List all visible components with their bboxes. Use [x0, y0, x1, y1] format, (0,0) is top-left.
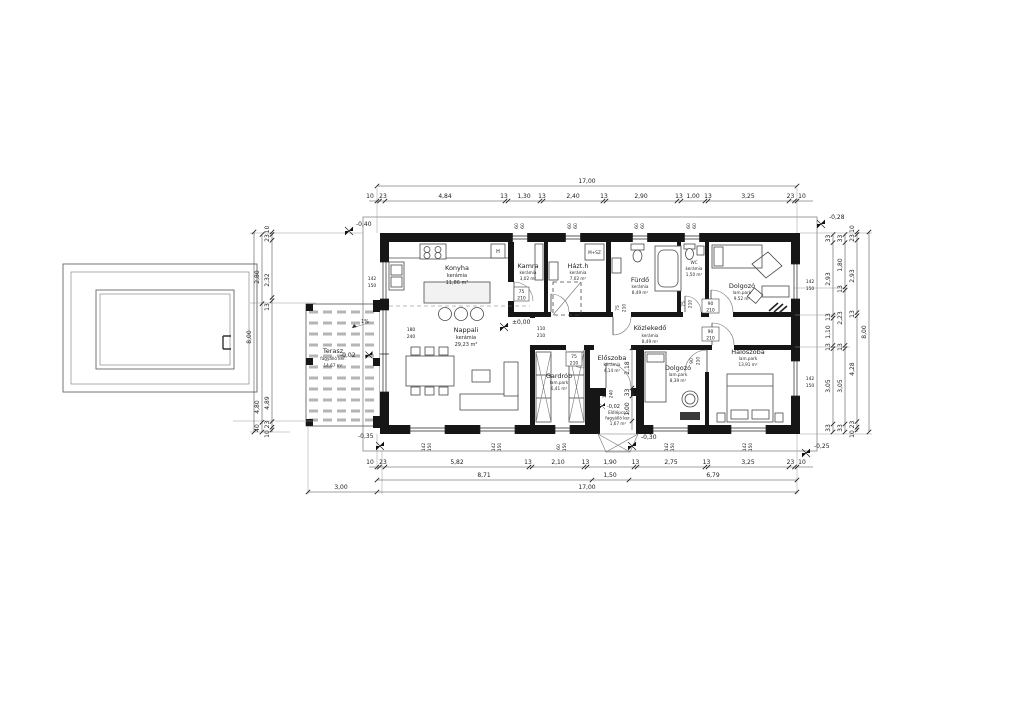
svg-text:60: 60 — [634, 223, 640, 229]
svg-text:kerámia: kerámia — [447, 272, 467, 279]
svg-text:210: 210 — [622, 304, 628, 313]
dim-right-3: 10232,93134,282310 — [849, 225, 859, 438]
svg-text:13: 13 — [704, 193, 712, 200]
svg-text:150: 150 — [748, 443, 754, 452]
svg-text:150: 150 — [497, 443, 503, 452]
svg-text:10: 10 — [264, 430, 271, 438]
svg-text:Előszoba: Előszoba — [598, 353, 627, 362]
svg-text:4,14 m²: 4,14 m² — [604, 368, 621, 373]
svg-text:90: 90 — [689, 358, 695, 364]
room-label-furdo: Fürdőkerámia8,49 m² — [631, 275, 649, 295]
svg-text:lam.park: lam.park — [669, 372, 688, 377]
window-gardrob — [555, 425, 570, 434]
svg-text:10: 10 — [366, 459, 374, 466]
svg-text:13: 13 — [264, 303, 271, 311]
svg-text:142: 142 — [664, 443, 670, 452]
svg-text:142: 142 — [742, 443, 748, 452]
dim-top-chain: 10234,84131,30132,40132,90131,00133,2523… — [366, 193, 813, 203]
window-60-1 — [513, 233, 528, 242]
svg-text:33: 33 — [837, 424, 844, 432]
svg-text:-0,40: -0,40 — [356, 221, 372, 228]
sofa-set — [460, 362, 518, 410]
svg-text:23: 23 — [264, 234, 271, 242]
wc-fixtures — [684, 244, 704, 260]
double-bed — [727, 374, 773, 422]
svg-text:3,00: 3,00 — [334, 484, 348, 491]
svg-text:14,67 m²: 14,67 m² — [323, 363, 342, 368]
svg-text:13: 13 — [825, 343, 832, 351]
nightstand — [717, 413, 725, 422]
svg-text:60: 60 — [567, 223, 573, 229]
label-door-wc: 75210 — [681, 300, 694, 309]
svg-text:60: 60 — [514, 223, 520, 229]
svg-text:6,79: 6,79 — [706, 472, 720, 479]
svg-text:2,80: 2,80 — [254, 270, 261, 284]
entry-steps — [598, 434, 638, 452]
dim-bottom-gap: 3,00 — [306, 484, 377, 494]
dining-set — [406, 347, 454, 395]
svg-text:kerámia: kerámia — [570, 270, 587, 275]
svg-text:1,50: 1,50 — [603, 472, 617, 479]
svg-text:5,82: 5,82 — [450, 459, 464, 466]
svg-text:1,30: 1,30 — [517, 193, 531, 200]
svg-text:60: 60 — [520, 223, 526, 229]
level-porch: -0,02 — [599, 403, 620, 410]
svg-text:90: 90 — [708, 301, 714, 307]
svg-text:23: 23 — [787, 459, 795, 466]
nightstand — [775, 413, 783, 422]
svg-text:13: 13 — [600, 193, 608, 200]
svg-text:10: 10 — [798, 193, 806, 200]
svg-text:17,00: 17,00 — [578, 178, 595, 185]
svg-text:lam.park: lam.park — [739, 356, 758, 361]
svg-text:11,86 m²: 11,86 m² — [446, 280, 469, 286]
label-door-kamra: 75210 — [514, 287, 529, 302]
svg-text:4,89: 4,89 — [264, 396, 271, 410]
svg-text:9,52 m²: 9,52 m² — [734, 296, 751, 301]
label-door-dolgozo1: 90210 — [702, 299, 719, 314]
svg-text:6,41 m²: 6,41 m² — [551, 386, 568, 391]
svg-text:210: 210 — [517, 296, 526, 302]
level-bottom-right: -0,25 — [802, 443, 830, 457]
bed — [645, 352, 666, 402]
svg-text:Gardrób: Gardrób — [546, 372, 572, 380]
svg-text:33: 33 — [624, 389, 631, 397]
svg-text:-0,28: -0,28 — [829, 214, 845, 221]
window-haloszoba — [731, 425, 766, 434]
svg-text:17,00: 17,00 — [578, 484, 595, 491]
svg-text:210: 210 — [537, 333, 546, 339]
room-label-dolgozo1: Dolgozólam.park9,52 m² — [729, 282, 755, 301]
svg-text:23: 23 — [379, 193, 387, 200]
svg-text:Fürdő: Fürdő — [631, 275, 649, 284]
room-label-hazth: Házt.hkerámia7,02 m² — [567, 262, 588, 281]
window-living-1 — [410, 425, 445, 434]
svg-text:8,39 m²: 8,39 m² — [670, 378, 687, 383]
label-w60-2: 6060 — [567, 223, 579, 229]
svg-text:3,25: 3,25 — [741, 459, 755, 466]
label-w60-4: 6060 — [686, 223, 698, 229]
svg-text:Kamra: Kamra — [517, 262, 538, 270]
svg-text:210: 210 — [696, 357, 702, 366]
label-w142-b3: 142150 — [664, 443, 676, 452]
label-door-furdo: 75210 — [615, 304, 628, 313]
svg-text:kerámia: kerámia — [520, 270, 537, 275]
svg-text:210: 210 — [706, 336, 715, 342]
svg-text:210: 210 — [688, 300, 694, 309]
window-dolgozo1 — [791, 264, 800, 299]
svg-text:-0,02: -0,02 — [340, 352, 356, 359]
label-w142-b1: 142150 — [421, 443, 433, 452]
svg-text:3,02 m²: 3,02 m² — [520, 276, 537, 281]
svg-text:2,40: 2,40 — [566, 193, 580, 200]
toilet-icon — [686, 249, 694, 260]
dim-bottom-total: 17,00 — [375, 484, 799, 494]
svg-text:23: 23 — [264, 421, 271, 429]
svg-text:150: 150 — [427, 443, 433, 452]
bedroom-furniture — [717, 374, 783, 422]
label-w142-b4: 142150 — [742, 443, 754, 452]
svg-text:10: 10 — [366, 193, 374, 200]
label-door-dolgozo2: 90210 — [689, 357, 702, 366]
svg-text:13: 13 — [703, 459, 711, 466]
svg-text:1,90: 1,90 — [603, 459, 617, 466]
svg-text:-0,30: -0,30 — [641, 434, 657, 441]
svg-text:-0,25: -0,25 — [814, 443, 830, 450]
svg-text:10: 10 — [849, 430, 856, 438]
svg-text:4,84: 4,84 — [438, 193, 452, 200]
svg-text:2,18: 2,18 — [624, 361, 631, 375]
svg-text:8,00: 8,00 — [246, 330, 253, 344]
armchair — [769, 303, 787, 313]
pool — [63, 264, 257, 392]
svg-text:Dolgozó: Dolgozó — [665, 364, 691, 372]
window-60-2 — [566, 233, 581, 242]
svg-text:142: 142 — [806, 279, 815, 285]
cabinet — [680, 412, 700, 420]
svg-text:2,93: 2,93 — [825, 272, 832, 286]
room-label-elolepcso: Előlépcsőfagyálló ker.1,67 m² — [605, 410, 630, 426]
svg-text:Dolgozó: Dolgozó — [729, 282, 755, 290]
svg-text:lam.park: lam.park — [733, 290, 752, 295]
room-label-kozlekedo: Közlekedőkerámia8,49 m² — [634, 323, 667, 344]
room-label-eloszoba: Előszobakerámia4,14 m² — [598, 353, 627, 373]
washbasin-icon — [612, 258, 621, 273]
svg-text:33: 33 — [837, 235, 844, 243]
desk — [762, 286, 789, 297]
coffee-table — [472, 370, 490, 382]
svg-text:60: 60 — [686, 223, 692, 229]
svg-text:WC: WC — [690, 260, 697, 265]
svg-text:8,00: 8,00 — [861, 325, 868, 339]
svg-text:33: 33 — [825, 424, 832, 432]
svg-text:180: 180 — [407, 327, 416, 333]
dim-right-1: 332,93131,10133,0533 — [825, 232, 835, 434]
svg-text:142: 142 — [806, 376, 815, 382]
dim-right-2: 331,80132,23133,0533 — [837, 232, 847, 434]
svg-text:10: 10 — [849, 225, 856, 233]
svg-text:1,00: 1,00 — [686, 193, 700, 200]
terrace-door — [380, 310, 389, 392]
svg-text:60: 60 — [640, 223, 646, 229]
room-label-haloszoba: Hálószobalam.park13,91 m² — [731, 348, 765, 367]
svg-text:10: 10 — [798, 459, 806, 466]
svg-text:1,50 m²: 1,50 m² — [686, 272, 703, 277]
svg-text:4,28: 4,28 — [849, 362, 856, 376]
room-label-dolgozo2: Dolgozólam.park8,39 m² — [665, 364, 691, 383]
label-w142-b2: 142150 — [491, 443, 503, 452]
level-bottom-left: -0,35 — [358, 433, 384, 450]
window-haloszoba-e — [791, 361, 800, 396]
svg-text:2,32: 2,32 — [264, 273, 271, 287]
label-w60-3: 6060 — [634, 223, 646, 229]
room-label-kamra: Kamrakerámia3,02 m² — [517, 262, 538, 281]
svg-text:150: 150 — [562, 443, 568, 452]
svg-text:1,80: 1,80 — [837, 258, 844, 272]
label-w142-left: 142150 — [368, 276, 377, 289]
corner-basin — [697, 246, 704, 255]
washer-label: M+SZ — [588, 250, 601, 255]
svg-text:kerámia: kerámia — [686, 266, 703, 271]
svg-text:13: 13 — [500, 193, 508, 200]
svg-text:Nappali: Nappali — [454, 326, 479, 334]
svg-text:13: 13 — [632, 459, 640, 466]
svg-text:1,67 m²: 1,67 m² — [610, 421, 627, 426]
svg-text:Közlekedő: Közlekedő — [634, 323, 667, 332]
svg-text:±0,00: ±0,00 — [512, 319, 531, 326]
svg-text:13: 13 — [582, 459, 590, 466]
svg-text:2,10: 2,10 — [551, 459, 565, 466]
dim-top-total: 17,00 — [375, 178, 799, 188]
window-60-3 — [633, 233, 648, 242]
window-dolgozo2 — [653, 425, 688, 434]
svg-text:75: 75 — [571, 354, 577, 360]
svg-text:75: 75 — [615, 305, 621, 311]
svg-text:150: 150 — [806, 383, 815, 389]
dim-pool-a: 2,804,8040 — [254, 232, 264, 434]
toilet-tank — [631, 244, 644, 250]
svg-text:13: 13 — [538, 193, 546, 200]
svg-text:8,49 m²: 8,49 m² — [632, 290, 649, 295]
dim-bottom-row2: 8,711,506,79 — [375, 472, 799, 482]
svg-text:142: 142 — [368, 276, 377, 282]
svg-text:Konyha: Konyha — [445, 264, 469, 272]
room-label-wc: WCkerámia1,50 m² — [686, 260, 703, 277]
svg-text:2,23: 2,23 — [837, 311, 844, 325]
svg-text:-0,02: -0,02 — [607, 404, 620, 410]
svg-text:1,10: 1,10 — [825, 325, 832, 339]
room-label-gardrob: Gardróblam.park6,41 m² — [546, 372, 572, 391]
label-w60-1: 6060 — [514, 223, 526, 229]
svg-text:13: 13 — [849, 310, 856, 318]
svg-text:210: 210 — [706, 308, 715, 314]
svg-text:13,91 m²: 13,91 m² — [738, 362, 757, 367]
svg-text:75: 75 — [681, 301, 687, 307]
svg-text:3,05: 3,05 — [825, 379, 832, 393]
svg-text:2,93: 2,93 — [849, 269, 856, 283]
svg-text:23: 23 — [849, 234, 856, 242]
svg-text:110: 110 — [537, 326, 546, 332]
svg-text:13: 13 — [825, 313, 832, 321]
terrace-deck-boards — [309, 312, 377, 420]
svg-text:90: 90 — [708, 329, 714, 335]
label-door-haloszoba: 90210 — [702, 327, 719, 342]
svg-text:150: 150 — [368, 283, 377, 289]
dim-right-total: 8,00 — [861, 230, 871, 434]
svg-text:13: 13 — [675, 193, 683, 200]
svg-text:240: 240 — [609, 390, 615, 399]
daybed — [712, 245, 762, 268]
level-entrance: -0,30 — [628, 434, 657, 450]
label-door-entry: 100240 — [602, 390, 615, 399]
svg-text:33: 33 — [825, 235, 832, 243]
study1-furniture — [712, 245, 789, 313]
label-w60150: 60150 — [556, 443, 568, 452]
label-d180: 180240 — [407, 327, 416, 340]
level-interior: ±0,00 — [500, 319, 531, 331]
floor-plan-drawing: 17,0010234,84131,30132,40132,90131,00133… — [0, 0, 1024, 724]
svg-text:29,23 m²: 29,23 m² — [455, 342, 478, 348]
svg-text:23: 23 — [379, 459, 387, 466]
svg-text:Házt.h: Házt.h — [567, 262, 588, 270]
svg-text:kerámia: kerámia — [642, 333, 659, 338]
window-kitchen — [380, 262, 389, 299]
toilet-icon — [633, 250, 642, 262]
svg-text:23: 23 — [849, 421, 856, 429]
svg-text:kerámia: kerámia — [604, 362, 621, 367]
svg-text:kerámia: kerámia — [456, 334, 476, 341]
svg-text:23: 23 — [787, 193, 795, 200]
door-furdo — [613, 317, 631, 335]
svg-text:60: 60 — [573, 223, 579, 229]
svg-text:lam.park: lam.park — [550, 380, 569, 385]
svg-text:13: 13 — [837, 285, 844, 293]
svg-text:150: 150 — [670, 443, 676, 452]
svg-text:75: 75 — [519, 289, 525, 295]
label-d110: 110210 — [537, 326, 546, 339]
svg-text:60: 60 — [692, 223, 698, 229]
label-w142-r1: 142150 — [806, 279, 815, 292]
svg-text:kerámia: kerámia — [632, 284, 649, 289]
svg-text:60: 60 — [556, 444, 562, 450]
slope-label: 1% — [361, 319, 369, 325]
svg-text:13: 13 — [524, 459, 532, 466]
stool — [455, 308, 468, 321]
svg-text:3,25: 3,25 — [741, 193, 755, 200]
svg-text:142: 142 — [491, 443, 497, 452]
dim-pool-b: 10232,32134,892310 — [264, 226, 274, 438]
label-door-gardrob: 75210 — [566, 352, 582, 367]
door-hazth — [551, 294, 569, 312]
svg-text:210: 210 — [570, 361, 579, 367]
svg-text:100: 100 — [602, 390, 608, 399]
svg-text:4,80: 4,80 — [254, 400, 261, 414]
stool — [439, 308, 452, 321]
room-label-nappali: Nappalikerámia29,23 m² — [454, 326, 479, 348]
svg-text:142: 142 — [421, 443, 427, 452]
svg-text:240: 240 — [407, 334, 416, 340]
stool — [471, 308, 484, 321]
svg-text:8,71: 8,71 — [477, 472, 491, 479]
svg-text:3,05: 3,05 — [837, 379, 844, 393]
window-living-2 — [480, 425, 515, 434]
svg-text:Hálószoba: Hálószoba — [731, 348, 765, 356]
level-top-right: -0,28 — [817, 214, 845, 228]
svg-text:2,90: 2,90 — [634, 193, 648, 200]
fridge-label: H — [496, 249, 500, 255]
window-60-4 — [685, 233, 700, 242]
svg-text:-0,35: -0,35 — [358, 433, 374, 440]
label-w142-r2: 142150 — [806, 376, 815, 389]
svg-text:8,49 m²: 8,49 m² — [642, 339, 659, 344]
svg-text:Előlépcső: Előlépcső — [608, 410, 628, 415]
svg-text:150: 150 — [806, 286, 815, 292]
svg-text:2,75: 2,75 — [664, 459, 678, 466]
floor-plan-sheet: 17,0010234,84131,30132,40132,90131,00133… — [0, 0, 1024, 724]
room-label-konyha: Konyhakerámia11,86 m² — [445, 264, 469, 286]
round-table — [682, 391, 698, 407]
svg-text:10: 10 — [264, 226, 271, 234]
svg-text:13: 13 — [837, 343, 844, 351]
svg-text:fagyálló ker.: fagyálló ker. — [605, 416, 630, 421]
svg-text:7,02 m²: 7,02 m² — [570, 276, 587, 281]
dim-bottom-chain: 10235,82132,10131,90132,75133,252310 — [366, 459, 813, 469]
